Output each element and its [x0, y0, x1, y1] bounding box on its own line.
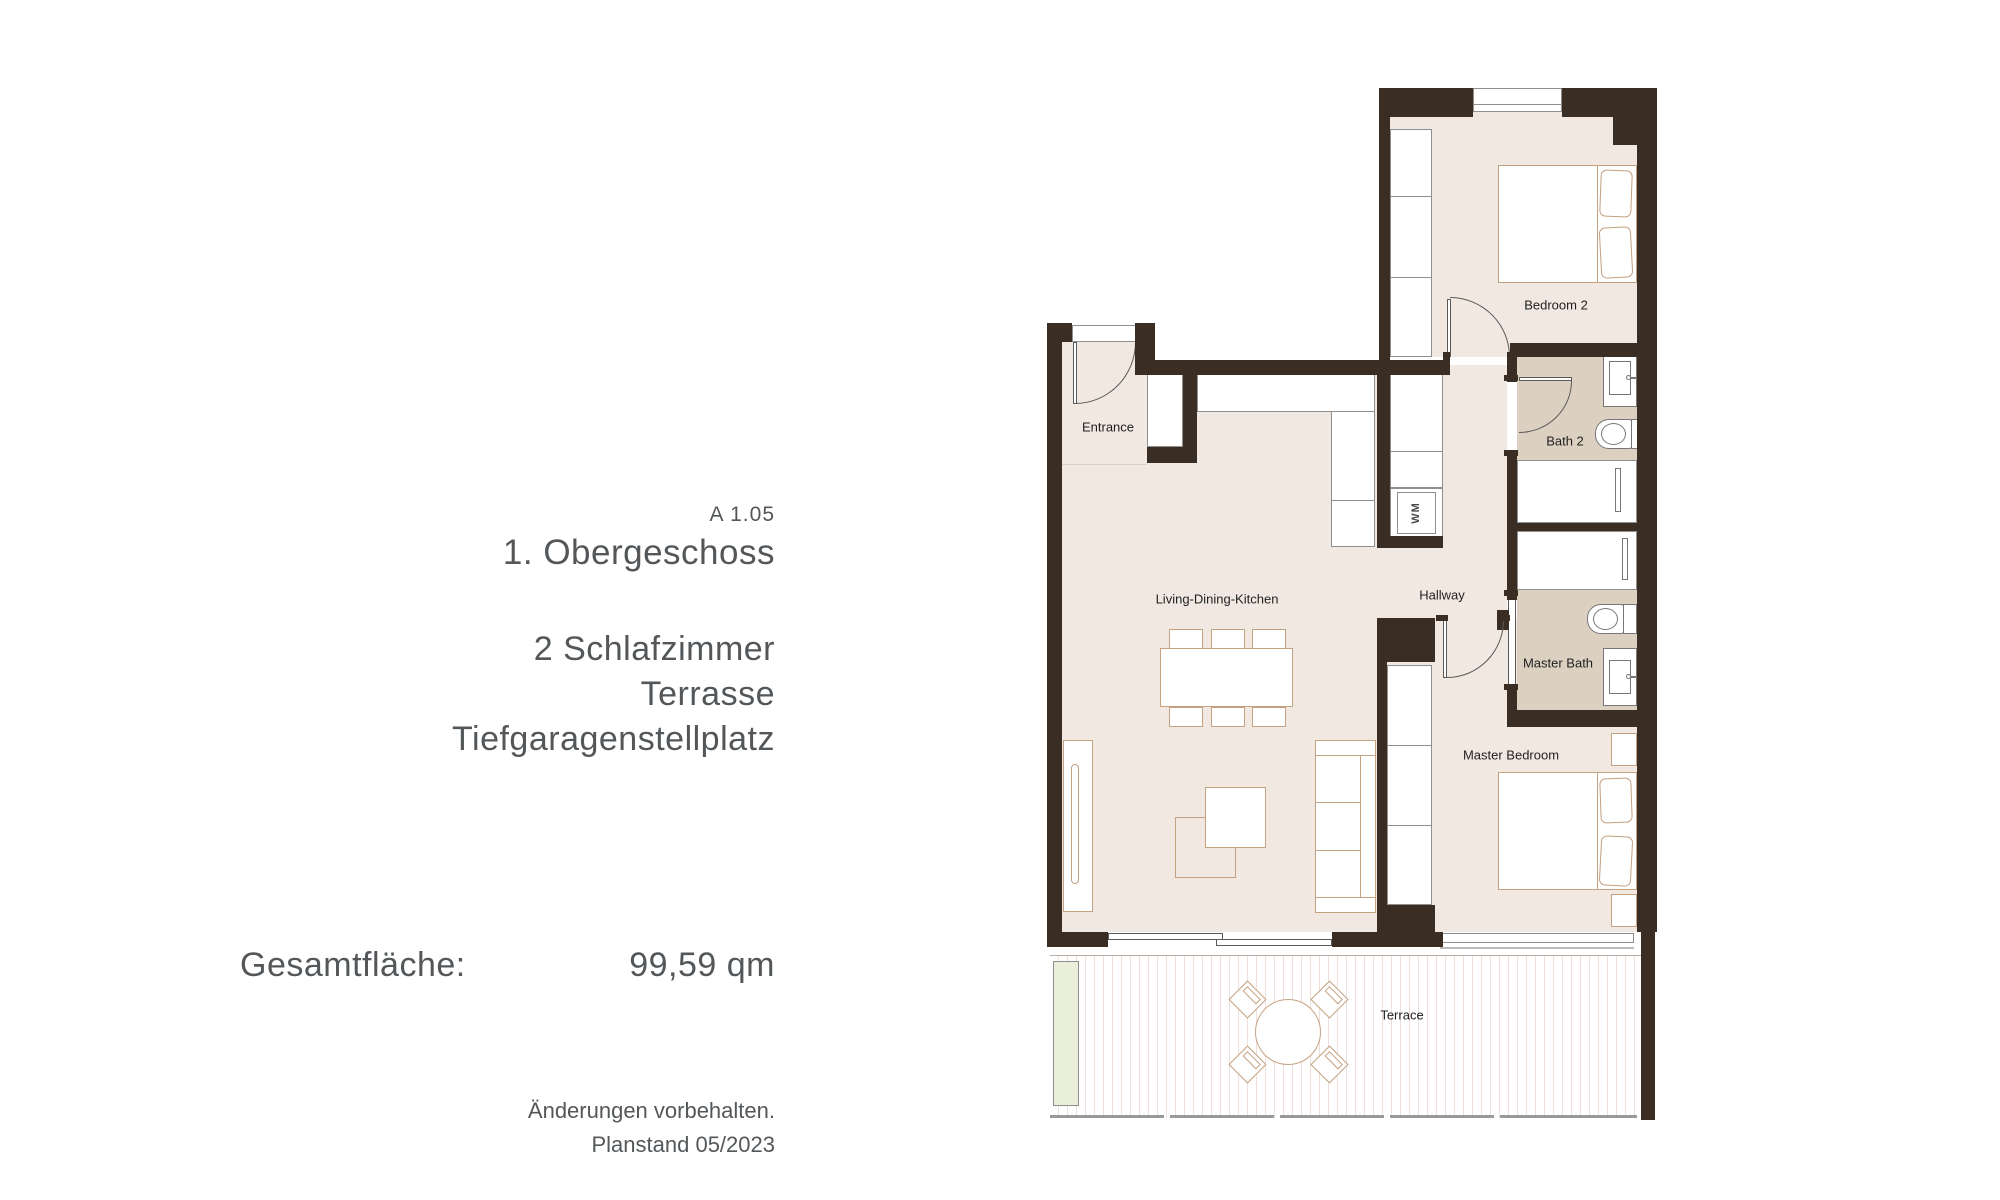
kitchen-counter-top	[1197, 374, 1375, 412]
room-label-living: Living-Dining-Kitchen	[1156, 592, 1279, 607]
terrace-railing	[1390, 1115, 1494, 1118]
wall	[1507, 710, 1657, 727]
dining-chair	[1169, 707, 1203, 727]
tv-unit	[1071, 764, 1079, 884]
master-bath-sliding-door	[1508, 597, 1516, 687]
sofa-seat-line	[1315, 850, 1360, 851]
coffee-table	[1205, 787, 1266, 848]
room-label-entrance: Entrance	[1082, 420, 1134, 435]
wardrobe-divider	[1390, 277, 1432, 278]
wall	[1147, 447, 1197, 463]
washing-machine-label: WM	[1410, 502, 1422, 524]
sofa-arm-line	[1315, 755, 1376, 756]
hallway-closet	[1390, 365, 1443, 488]
master-nightstand	[1611, 894, 1637, 927]
master-cistern	[1623, 604, 1637, 634]
wall	[1510, 343, 1657, 357]
dining-chair	[1211, 707, 1245, 727]
wall	[1332, 932, 1443, 947]
wall	[1379, 88, 1390, 360]
bath2-toilet-seat	[1601, 423, 1626, 445]
bedroom2-window	[1473, 88, 1562, 112]
wall	[1377, 536, 1443, 548]
dining-table	[1160, 648, 1293, 707]
room-label-bedroom2: Bedroom 2	[1524, 298, 1588, 313]
door-jamb	[1507, 352, 1514, 364]
entrance-threshold-line	[1062, 464, 1147, 465]
terrace-planter	[1053, 961, 1079, 1106]
terrace-deck	[1050, 955, 1641, 1118]
master-window	[1440, 933, 1634, 943]
door-jamb	[1436, 615, 1448, 621]
dining-chair	[1211, 629, 1245, 649]
master-shower	[1517, 531, 1637, 590]
terrace-table	[1255, 999, 1321, 1065]
master-wardrobe	[1387, 665, 1432, 905]
door-jamb	[1504, 375, 1518, 381]
sofa	[1315, 740, 1376, 913]
wardrobe-divider	[1387, 825, 1432, 826]
window-line	[1440, 947, 1634, 949]
wall	[1047, 323, 1072, 342]
door-jamb	[1504, 590, 1518, 596]
shower-glass	[1622, 538, 1628, 580]
wall	[1641, 932, 1655, 1120]
living-slider-leaf	[1108, 933, 1223, 940]
bed-pillow	[1599, 835, 1634, 887]
terrace-railing	[1050, 1115, 1164, 1118]
wall	[1637, 88, 1657, 932]
bedroom2-wardrobe	[1390, 129, 1432, 357]
wardrobe-divider	[1387, 745, 1432, 746]
master-nightstand	[1611, 733, 1637, 766]
room-label-terrace: Terrace	[1380, 1008, 1423, 1023]
entrance-door-recess	[1072, 325, 1136, 342]
living-slider-leaf	[1216, 939, 1332, 946]
wall	[1377, 662, 1387, 905]
sofa-back-line	[1360, 755, 1361, 898]
door-jamb	[1504, 450, 1518, 456]
entrance-wardrobe	[1147, 365, 1183, 447]
bed-pillow	[1599, 169, 1633, 217]
dining-chair	[1169, 629, 1203, 649]
kitchen-counter-side	[1331, 411, 1375, 547]
door-jamb	[1498, 615, 1510, 621]
wall	[1379, 88, 1473, 117]
dining-chair	[1252, 707, 1286, 727]
room-label-hallway: Hallway	[1419, 588, 1465, 603]
terrace-railing	[1280, 1115, 1384, 1118]
kitchen-counter-seam	[1331, 500, 1375, 501]
master-toilet-seat	[1593, 608, 1618, 630]
closet-divider	[1390, 451, 1443, 452]
sofa-seat-line	[1315, 802, 1360, 803]
bed-pillow	[1599, 777, 1633, 823]
bed-headline	[1597, 772, 1598, 890]
wardrobe-divider	[1390, 196, 1432, 197]
bed-headline	[1597, 165, 1598, 283]
shower-glass	[1615, 468, 1621, 512]
wall	[1047, 932, 1108, 947]
terrace-railing	[1170, 1115, 1274, 1118]
door-jamb	[1443, 352, 1450, 364]
dining-chair	[1252, 629, 1286, 649]
wall	[1377, 375, 1390, 548]
room-label-bath2: Bath 2	[1546, 434, 1584, 449]
wall	[1507, 455, 1517, 600]
floorplan: WM	[0, 0, 2000, 1200]
room-label-master-bath: Master Bath	[1523, 656, 1593, 671]
wall	[1377, 618, 1435, 662]
sofa-arm-line	[1315, 897, 1376, 898]
wall	[1517, 523, 1637, 531]
hallway-passage-floor	[1377, 548, 1507, 618]
room-label-master-bedroom: Master Bedroom	[1463, 748, 1559, 763]
door-jamb	[1504, 684, 1518, 690]
wall	[1047, 323, 1062, 947]
terrace-railing	[1500, 1115, 1637, 1118]
bed-pillow	[1599, 226, 1634, 279]
window-line	[1473, 104, 1562, 105]
